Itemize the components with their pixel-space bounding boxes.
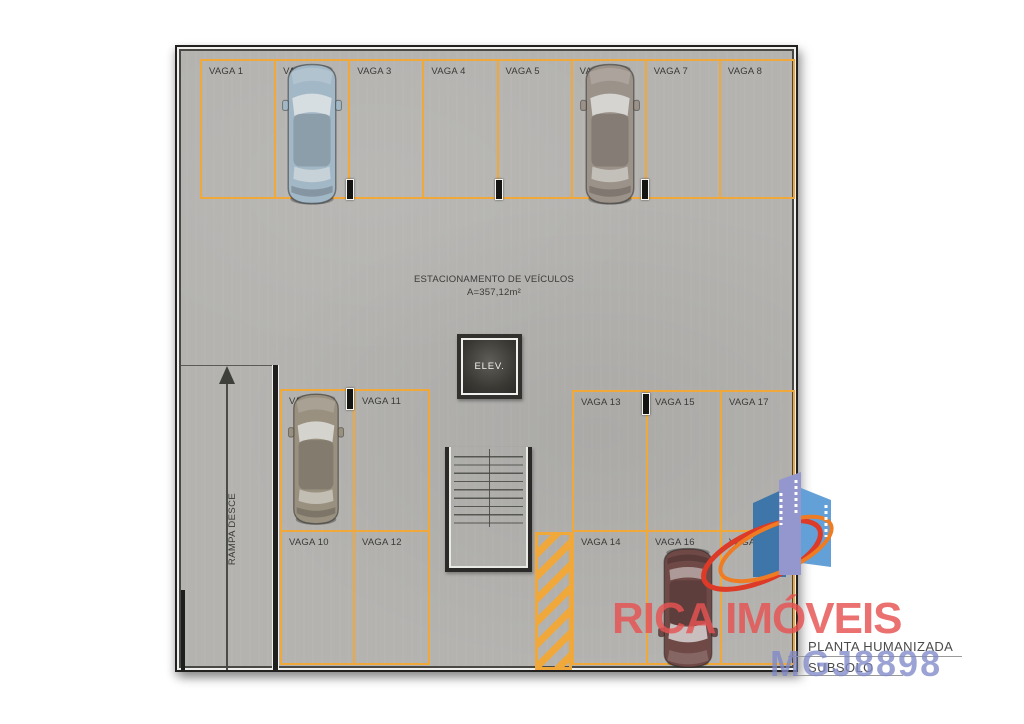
spot-label: VAGA 7 <box>647 61 719 77</box>
spot-label: VAGA 13 <box>574 392 646 408</box>
spot-label: VAGA 12 <box>355 532 428 548</box>
column-pillar <box>642 393 650 415</box>
parking-spot-vaga-10: VAGA 10 <box>282 532 355 663</box>
parking-spot-vaga-11: VAGA 11 <box>355 391 428 532</box>
area-caption: ESTACIONAMENTO DE VEÍCULOS A=357,12m² <box>344 273 644 299</box>
reference-watermark: MGJ8898 <box>770 643 942 685</box>
parking-spot-vaga-4: VAGA 4 <box>424 61 498 197</box>
car-vaga-2 <box>281 60 343 208</box>
spot-label: VAGA 5 <box>499 61 571 77</box>
column-pillar <box>495 179 503 200</box>
spot-label: VAGA 10 <box>282 532 353 548</box>
parking-spot-vaga-12: VAGA 12 <box>355 532 428 663</box>
floor-plan-page: VAGA 1 VAGA 2 VAGA 3 VAGA 4 VAGA 5 VAGA … <box>0 0 1024 724</box>
spot-label: VAGA 1 <box>202 61 274 77</box>
spot-label: VAGA 15 <box>648 392 720 408</box>
stairs-wall <box>449 447 528 568</box>
parking-spot-vaga-13: VAGA 13 <box>574 392 648 532</box>
column-pillar <box>346 179 354 200</box>
stairs <box>445 447 532 572</box>
column-pillar <box>346 388 354 410</box>
ramp-arrow-head <box>219 366 235 384</box>
spot-label: VAGA 11 <box>355 391 428 407</box>
spot-label: VAGA 14 <box>574 532 646 548</box>
stairs-treads <box>454 449 523 527</box>
parking-spot-vaga-5: VAGA 5 <box>499 61 573 197</box>
parking-spot-vaga-8: VAGA 8 <box>721 61 793 197</box>
ramp-label: RAMPA DESCE <box>227 474 239 584</box>
agency-name: RICA IMÓVEIS <box>612 594 902 644</box>
car-vaga-9 <box>287 390 345 528</box>
spot-label: VAGA 8 <box>721 61 793 77</box>
wall-segment <box>181 590 185 671</box>
parking-spot-vaga-3: VAGA 3 <box>350 61 424 197</box>
spot-label: VAGA 17 <box>722 392 793 408</box>
parking-spot-vaga-7: VAGA 7 <box>647 61 721 197</box>
car-vaga-6 <box>579 60 641 208</box>
spot-label: VAGA 4 <box>424 61 496 77</box>
no-parking-hatch <box>535 532 572 670</box>
area-title: ESTACIONAMENTO DE VEÍCULOS <box>344 273 644 286</box>
ramp-wall <box>272 365 279 672</box>
elevator: ELEV. <box>457 334 522 399</box>
area-size: A=357,12m² <box>344 286 644 299</box>
column-pillar <box>641 179 649 200</box>
parking-spot-vaga-1: VAGA 1 <box>202 61 276 197</box>
spot-label: VAGA 3 <box>350 61 422 77</box>
elevator-label: ELEV. <box>474 361 504 372</box>
